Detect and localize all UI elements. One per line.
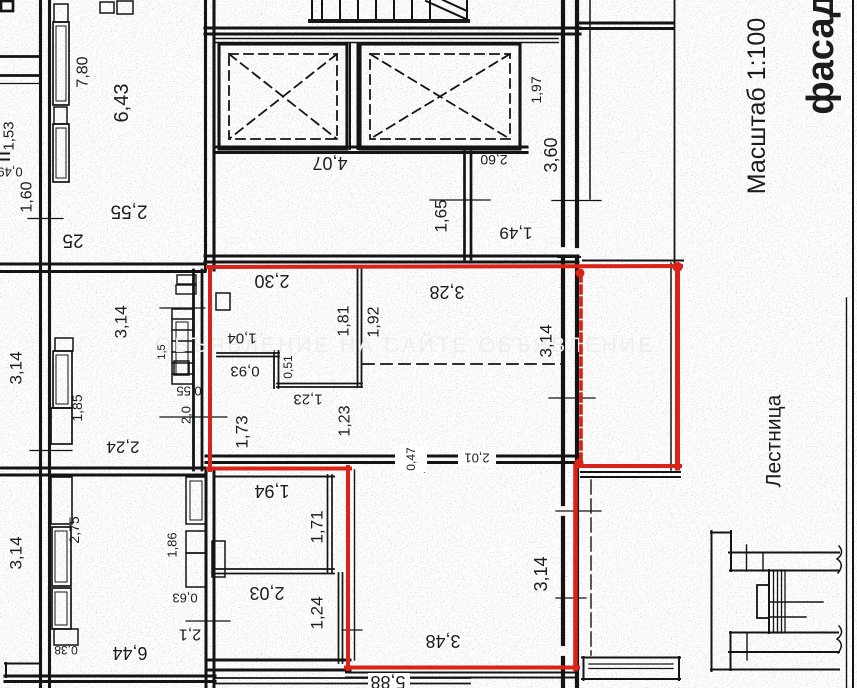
svg-text:фасад: фасад: [800, 0, 842, 115]
svg-text:2,60: 2,60: [480, 152, 507, 168]
svg-text:3,48: 3,48: [425, 631, 460, 651]
svg-text:1,5: 1,5: [156, 344, 168, 359]
svg-text:1,04: 1,04: [227, 330, 256, 347]
svg-text:1,24: 1,24: [308, 596, 327, 629]
svg-text:1,65: 1,65: [432, 199, 451, 232]
svg-text:3,28: 3,28: [429, 282, 464, 302]
svg-text:1,53: 1,53: [1, 121, 18, 150]
svg-text:5,88: 5,88: [370, 672, 405, 688]
svg-text:3,14: 3,14: [7, 536, 26, 569]
svg-text:6,43: 6,43: [111, 84, 133, 123]
svg-text:1,23: 1,23: [337, 405, 354, 436]
svg-text:1,23: 1,23: [293, 391, 322, 408]
svg-text:3,14: 3,14: [531, 556, 551, 591]
svg-text:1,73: 1,73: [233, 415, 252, 448]
svg-text:1,71: 1,71: [308, 510, 327, 543]
svg-text:6,44: 6,44: [112, 643, 147, 663]
svg-text:2,1: 2,1: [179, 626, 201, 643]
svg-text:3,14: 3,14: [112, 305, 131, 338]
svg-text:0,47: 0,47: [404, 447, 418, 471]
svg-text:1,92: 1,92: [366, 306, 383, 337]
svg-text:1,85: 1,85: [69, 394, 85, 421]
svg-text:1,60: 1,60: [19, 181, 36, 212]
svg-text:3,14: 3,14: [7, 351, 26, 384]
svg-text:2,55: 2,55: [111, 201, 148, 222]
svg-text:0,55: 0,55: [176, 384, 201, 399]
svg-text:0,38: 0,38: [54, 643, 78, 657]
svg-text:0,51: 0,51: [281, 355, 295, 379]
svg-text:2,0: 2,0: [179, 406, 194, 424]
svg-text:2,75: 2,75: [66, 516, 82, 543]
svg-text:2,03: 2,03: [249, 583, 284, 603]
svg-text:0,63: 0,63: [172, 591, 197, 606]
svg-text:1,94: 1,94: [254, 481, 289, 501]
svg-text:3,60: 3,60: [541, 137, 561, 172]
svg-text:1,49: 1,49: [499, 224, 532, 243]
svg-text:2,30: 2,30: [254, 271, 289, 291]
svg-text:0,93: 0,93: [230, 363, 259, 380]
svg-text:Масштаб 1:100: Масштаб 1:100: [743, 18, 771, 194]
svg-text:1,81: 1,81: [336, 305, 353, 336]
svg-text:3,14: 3,14: [537, 324, 556, 357]
svg-text:1,86: 1,86: [165, 532, 180, 557]
svg-text:4,07: 4,07: [312, 153, 347, 173]
svg-text:1,97: 1,97: [528, 76, 544, 103]
svg-text:2,24: 2,24: [106, 438, 139, 457]
svg-text:Лестница: Лестница: [763, 394, 786, 487]
svg-text:7,80: 7,80: [75, 56, 92, 87]
svg-text:2,01: 2,01: [464, 451, 489, 466]
svg-text:25: 25: [62, 230, 83, 251]
svg-text:0,49: 0,49: [0, 165, 23, 180]
